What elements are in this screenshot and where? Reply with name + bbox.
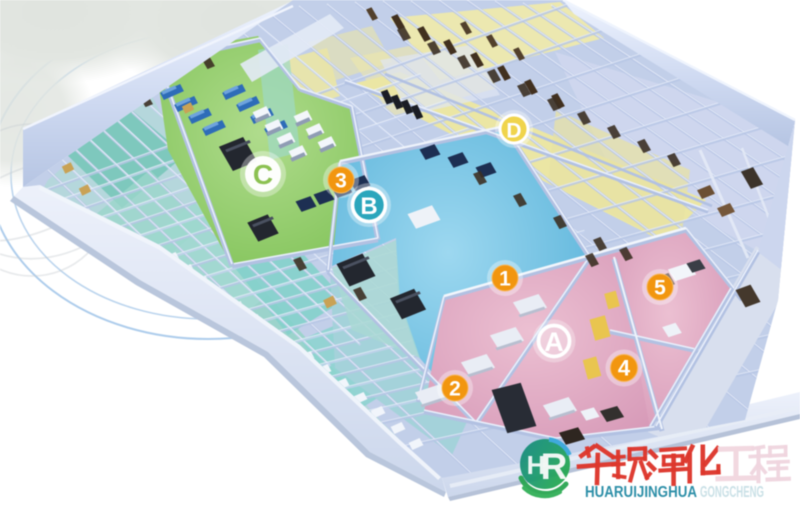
- svg-text:1: 1: [499, 267, 511, 290]
- svg-text:5: 5: [654, 276, 666, 299]
- svg-text:C: C: [253, 159, 273, 190]
- svg-text:A: A: [544, 327, 564, 357]
- svg-text:R: R: [541, 446, 568, 487]
- svg-text:HUARUIJINGHUA: HUARUIJINGHUA: [585, 484, 697, 501]
- svg-text:D: D: [506, 120, 521, 143]
- svg-text:GONGCHENG: GONGCHENG: [700, 484, 764, 501]
- svg-text:3: 3: [335, 169, 347, 192]
- svg-text:2: 2: [449, 377, 461, 400]
- svg-text:B: B: [360, 193, 377, 220]
- svg-text:4: 4: [618, 356, 631, 381]
